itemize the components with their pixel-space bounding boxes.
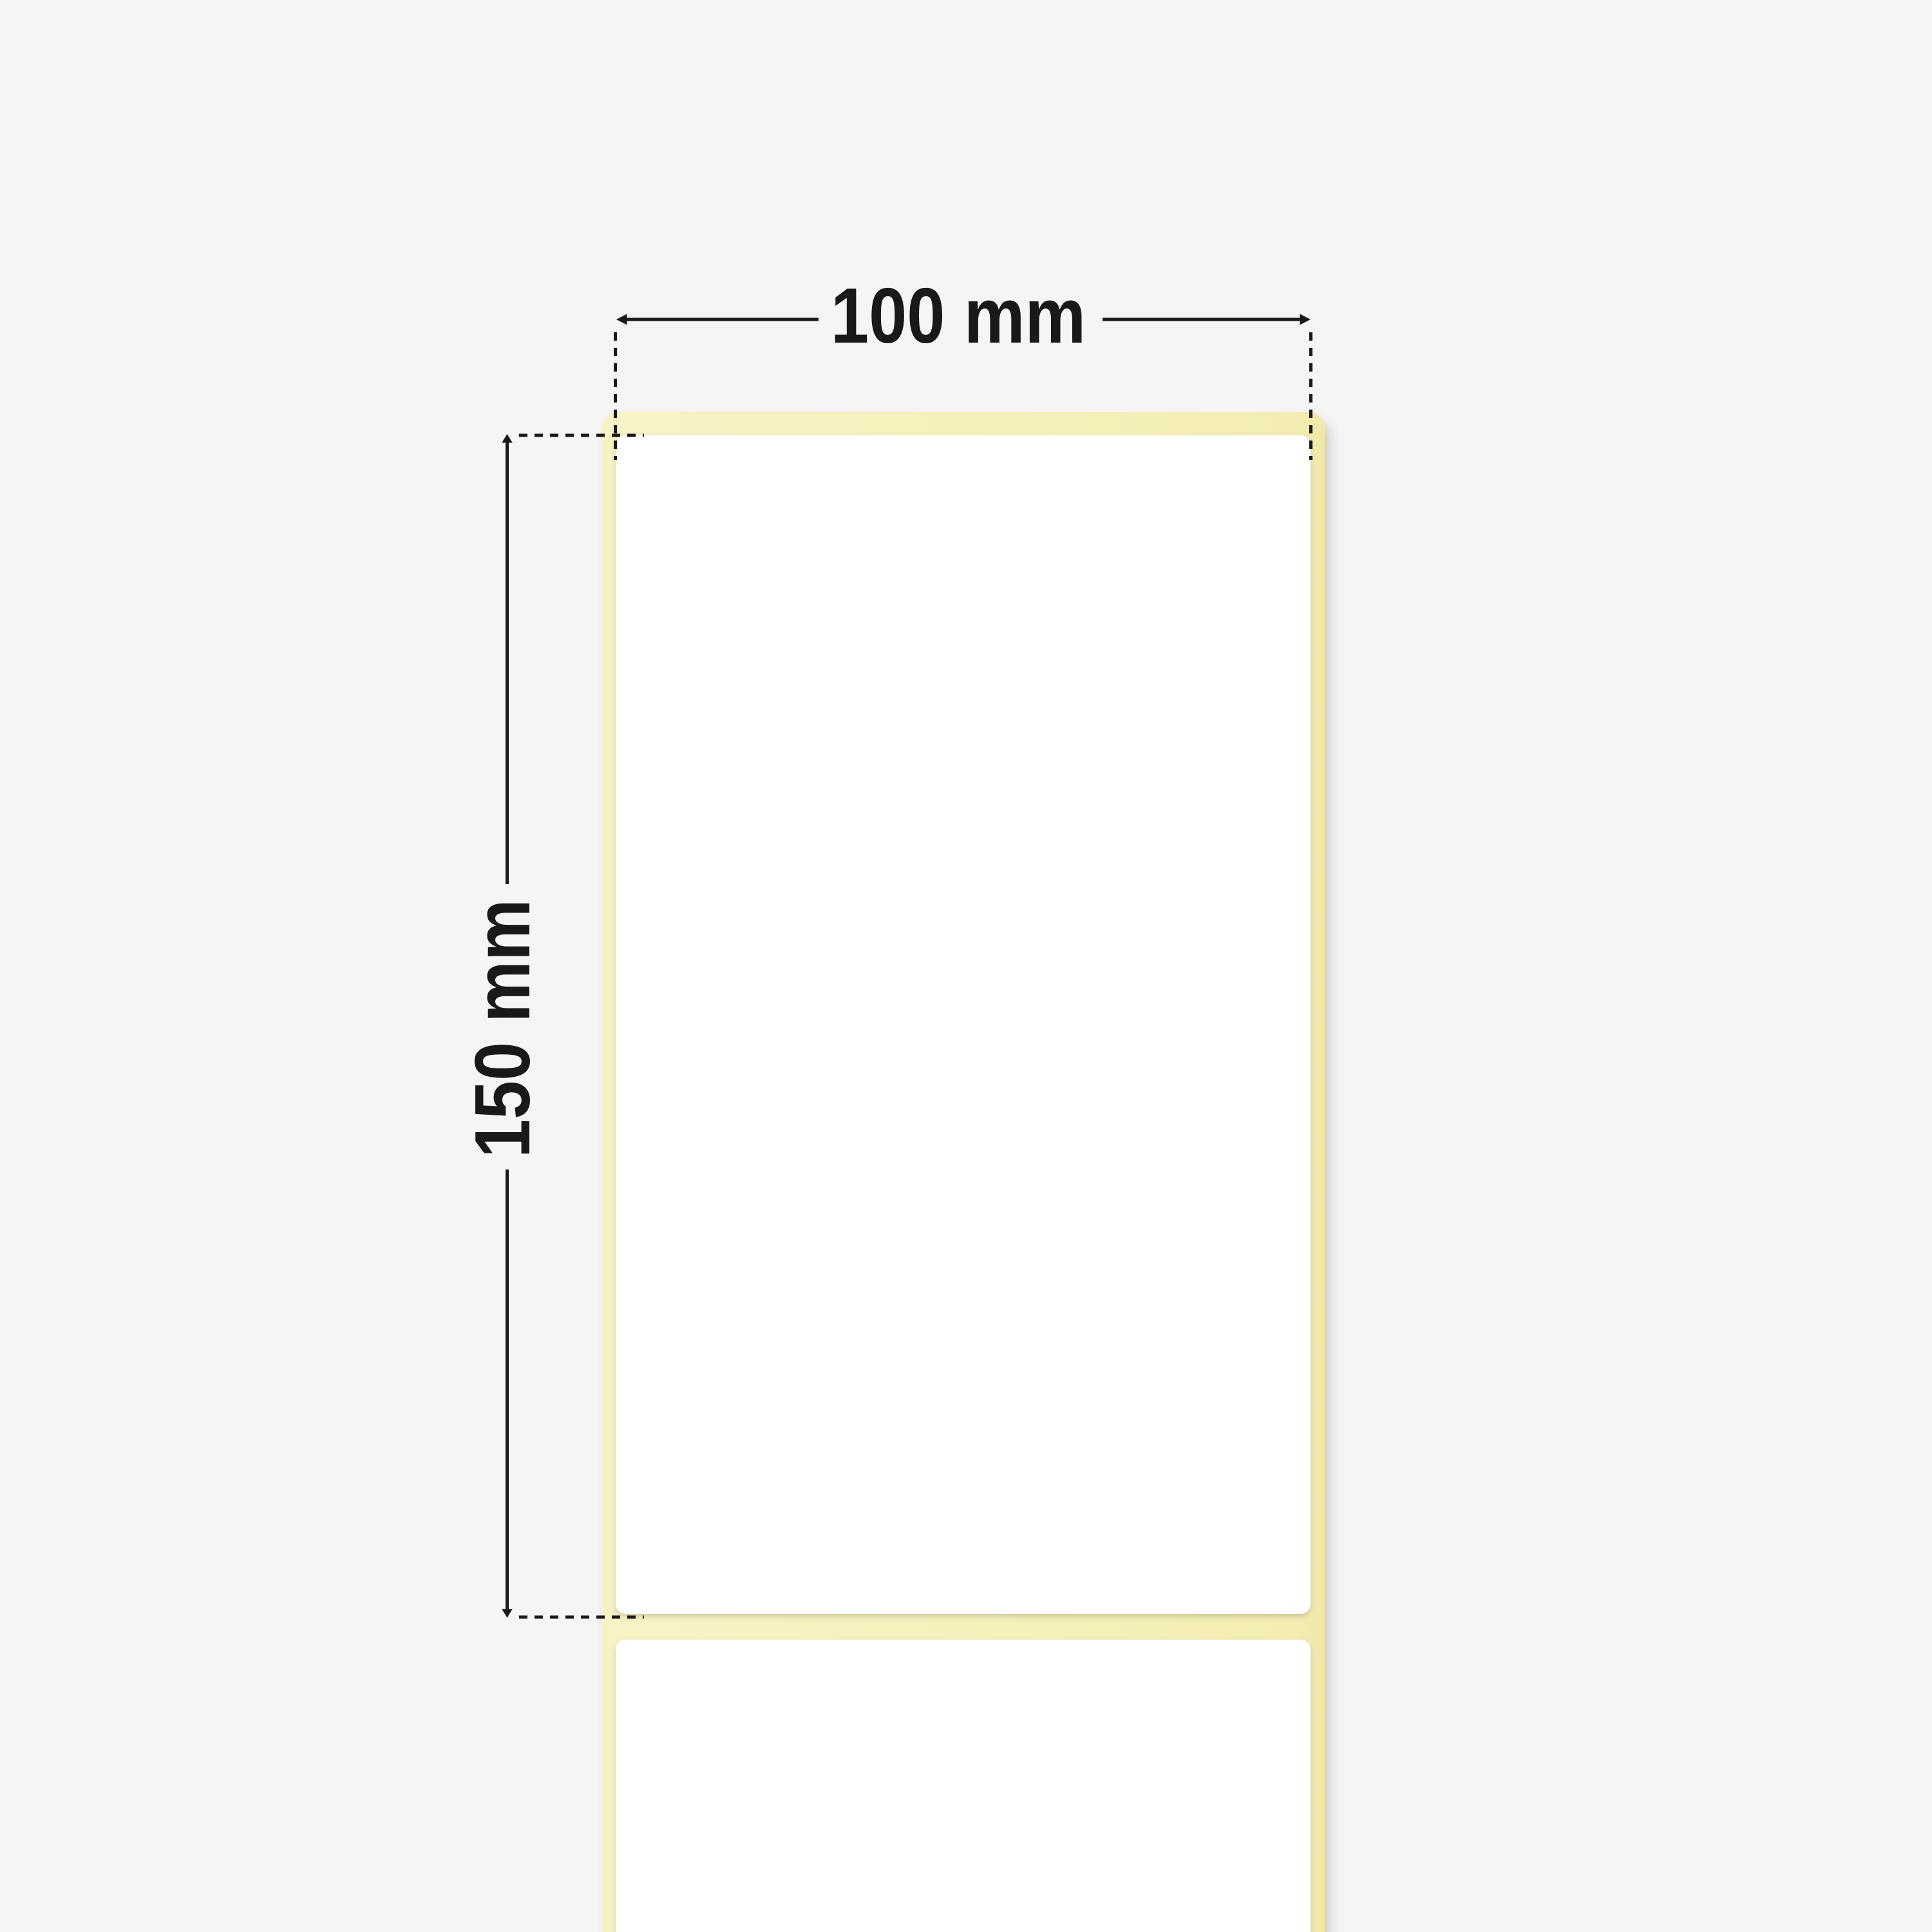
svg-text:150 mm: 150 mm xyxy=(459,899,546,1158)
svg-text:100 mm: 100 mm xyxy=(831,272,1086,359)
